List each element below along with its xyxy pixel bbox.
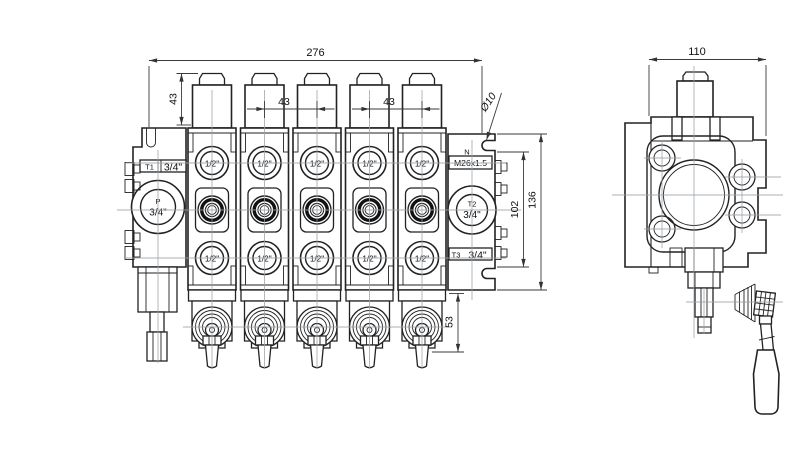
dim-section-spacing-right-text: 43 (383, 96, 395, 108)
control-lever (735, 284, 779, 414)
dim-cap-height-text: 43 (168, 93, 180, 105)
t3-port-size: 3/4" (468, 250, 487, 262)
relief-valve (138, 267, 177, 361)
dim-side-width-text: 110 (688, 46, 706, 58)
side-body-outline (625, 117, 766, 267)
dimension-mount-hole: Ø10 (477, 91, 501, 140)
side-view (625, 72, 779, 414)
dim-plate-height-text: 136 (527, 191, 539, 209)
dim-section-spacing-left-text: 43 (278, 96, 290, 108)
dim-port-span-text: 102 (509, 201, 521, 219)
lever-neck (760, 316, 772, 324)
lever-knurl-joint (754, 291, 776, 317)
dim-lever-projection-text: 53 (444, 316, 456, 328)
valve-drawing: 1/2" 1/2" (0, 0, 800, 450)
lever-grip (754, 350, 780, 414)
side-foot (649, 267, 658, 273)
side-cap (677, 81, 713, 117)
lever-bellows (735, 284, 755, 322)
dimension-port-span: 102 (497, 152, 529, 267)
t1-port-label: T1 (145, 163, 154, 172)
dim-overall-width-text: 276 (306, 47, 324, 59)
technical-drawing-page: 1/2" 1/2" (0, 0, 800, 450)
n-port-label: N (464, 148, 469, 157)
side-cap-top (683, 72, 708, 81)
